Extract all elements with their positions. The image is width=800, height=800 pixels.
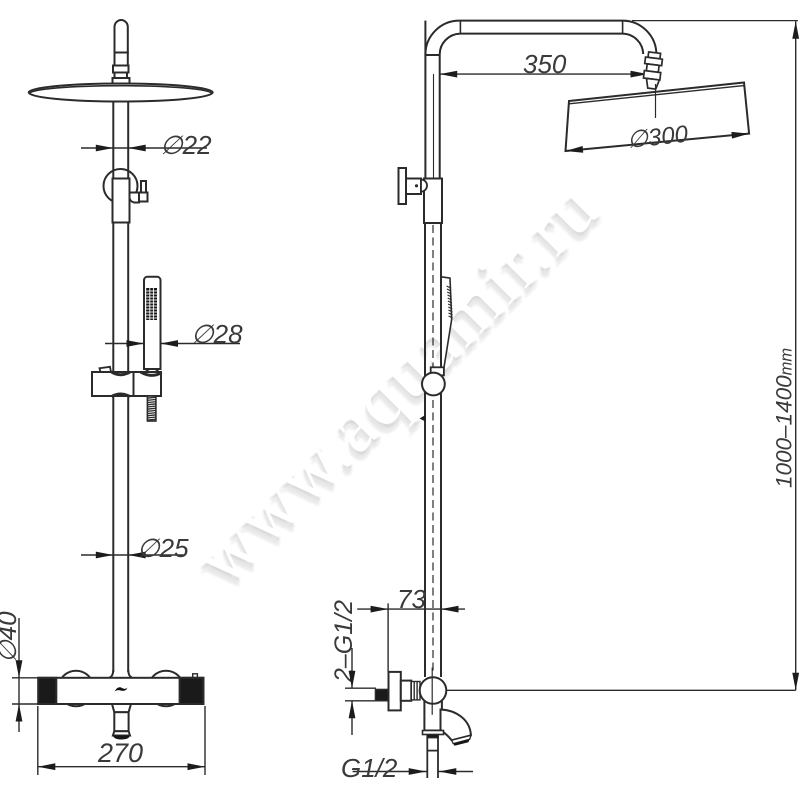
svg-text:2–G1/2: 2–G1/2 [330, 600, 358, 683]
svg-text:G1/2: G1/2 [341, 753, 398, 783]
svg-text:∅25: ∅25 [137, 533, 189, 563]
svg-text:∅300: ∅300 [626, 121, 690, 154]
svg-text:∅40: ∅40 [0, 611, 22, 663]
svg-text:1000–1400mm: 1000–1400mm [772, 348, 797, 488]
svg-text:350: 350 [523, 49, 567, 79]
svg-text:∅22: ∅22 [160, 130, 212, 160]
svg-text:www.aquamir.ru: www.aquamir.ru [178, 163, 615, 600]
svg-text:73: 73 [397, 584, 426, 614]
svg-text:∅28: ∅28 [191, 319, 243, 349]
svg-text:270: 270 [97, 738, 143, 768]
